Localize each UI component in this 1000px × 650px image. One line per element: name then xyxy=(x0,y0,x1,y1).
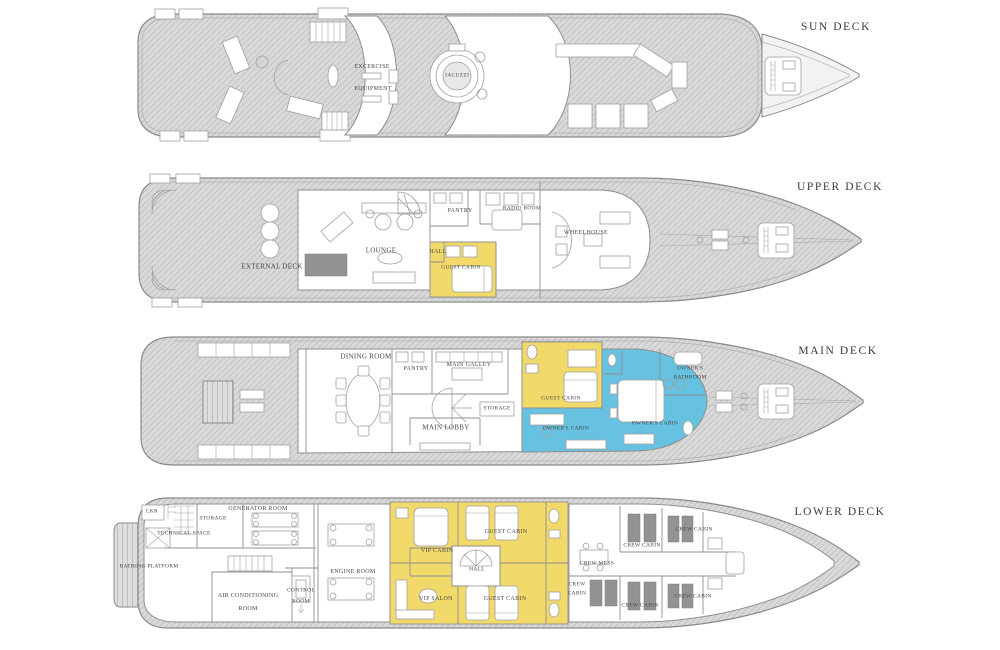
upper-deck-drawing xyxy=(139,174,861,307)
label-storage-lower: STORAGE xyxy=(199,516,226,522)
label-wheelhouse: WHEELHOUSE xyxy=(564,230,608,236)
label-crew-cabin-mid-lower: CREW CABIN xyxy=(621,603,658,609)
lower-deck-title: LOWER DECK xyxy=(794,506,885,518)
label-crew-cabin-aft-2: CABIN xyxy=(568,591,587,597)
label-exercise: EXCERCISE xyxy=(354,64,389,70)
label-main-guest-cabin: GUEST CABIN xyxy=(541,396,580,402)
sun-deck-title: SUN DECK xyxy=(801,21,871,33)
label-upper-hall: HALL xyxy=(429,249,446,255)
label-crew-cabin-fwd-upper: CREW CABIN xyxy=(675,527,712,533)
label-crew-cabin-aft-1: CREW xyxy=(568,582,585,588)
label-external-deck: EXTERNAL DECK xyxy=(241,264,302,271)
main-deck-title: MAIN DECK xyxy=(798,345,877,357)
label-bathing-platform: BATHING PLATFORM xyxy=(119,564,178,570)
bow-cockpit xyxy=(765,57,801,95)
label-owners-cabin-aft: OWNER'S CABIN xyxy=(543,426,590,432)
label-owners-cabin-fwd: OWNER'S CABIN xyxy=(632,421,679,427)
label-main-lobby: MAIN LOBBY xyxy=(422,425,469,432)
label-upper-pantry: PANTRY xyxy=(448,208,473,214)
label-dining-room: DINING ROOM xyxy=(341,354,392,361)
label-main-pantry: PANTRY xyxy=(404,366,429,372)
label-equipment: EQUIPMENT xyxy=(354,86,391,92)
label-jacuzzi: JACUZZI xyxy=(445,73,469,79)
label-air-conditioning-1: AIR CONDITIONING xyxy=(218,593,279,599)
label-guest-cabin-aft: GUEST CABIN xyxy=(484,596,527,602)
label-engine-room: ENGINE ROOM xyxy=(330,569,375,575)
label-vip-cabin: VIP CABIN xyxy=(421,548,453,554)
main-deck-drawing xyxy=(141,337,863,465)
label-generator-room: GENERATOR ROOM xyxy=(228,506,287,512)
label-crew-cabin-fwd-lower: CREW CABIN xyxy=(674,594,711,600)
label-guest-cabin-fwd: GUEST CABIN xyxy=(485,529,528,535)
label-control-room-1: CONTROL xyxy=(287,588,315,594)
label-radio-room: RADIO ROOM xyxy=(503,206,541,212)
label-storage-main: STORAGE xyxy=(483,406,510,412)
yacht-deck-plans: SUN DECK UPPER DECK MAIN DECK LOWER DECK… xyxy=(0,0,1000,650)
main-bow-cockpit xyxy=(758,384,794,419)
label-control-room-2: ROOM xyxy=(292,599,310,605)
label-upper-guest-cabin: GUEST CABIN xyxy=(441,265,480,271)
label-lkr: LKR xyxy=(146,509,158,515)
label-air-conditioning-2: ROOM xyxy=(238,606,257,612)
label-vip-salon: VIP SALON xyxy=(419,596,453,602)
label-lounge: LOUNGE xyxy=(366,248,397,255)
label-crew-cabin-mid-upper: CREW CABIN xyxy=(623,543,660,549)
deck-plan-drawing xyxy=(0,0,1000,650)
upper-deck-title: UPPER DECK xyxy=(797,181,883,193)
label-crew-mess: CREW MESS xyxy=(580,561,614,567)
label-owners-bathroom-2: BATHROOM xyxy=(673,375,706,381)
label-technical-space: TECHNICAL SPACE xyxy=(157,531,210,537)
label-owners-bathroom-1: OWNER'S xyxy=(677,366,703,372)
upper-bow-cockpit xyxy=(758,223,794,258)
label-lower-hall: HALL xyxy=(469,567,485,573)
label-main-galley: MAIN GALLEY xyxy=(447,362,492,368)
sun-deck-drawing xyxy=(138,8,859,141)
